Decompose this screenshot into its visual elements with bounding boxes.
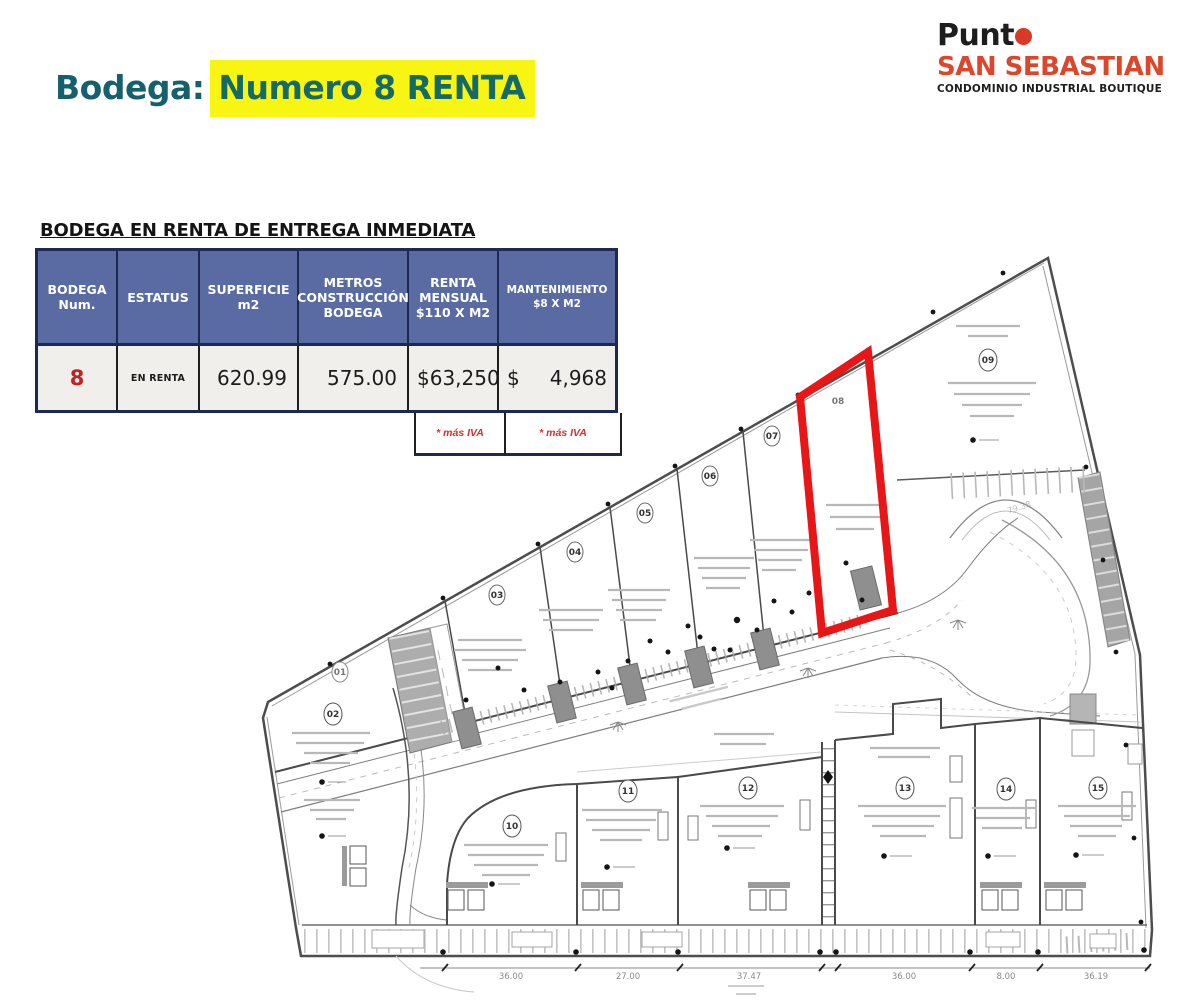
- svg-text:15: 15: [1092, 784, 1105, 794]
- unit-label-06: 06: [702, 466, 718, 486]
- listing-subtitle: BODEGA EN RENTA DE ENTREGA INMEDIATA: [40, 220, 475, 241]
- unit-label-03: 03: [489, 585, 505, 605]
- dimension-label: 8.00: [997, 972, 1016, 982]
- col-header-estatus: ESTATUS: [118, 251, 200, 346]
- unit-label-15: 15: [1089, 777, 1107, 799]
- dimension-label: 36.00: [499, 972, 523, 982]
- unit-label-12: 12: [739, 777, 757, 799]
- unit-label-13: 13: [896, 777, 914, 799]
- unit-label-10: 10: [503, 815, 521, 837]
- flyer-page: Bodega:Numero 8 RENTA Punt SAN SEBASTIAN…: [0, 0, 1200, 1000]
- title-prefix: Bodega:: [55, 68, 204, 107]
- svg-text:04: 04: [569, 548, 582, 558]
- unit-label-07: 07: [764, 426, 780, 446]
- svg-text:07: 07: [766, 432, 779, 442]
- site-plan: 01 03 04 05 06 07 08 09 02 10 11 12 13 1…: [230, 245, 1190, 1000]
- unit-label-11: 11: [619, 780, 637, 802]
- svg-text:14: 14: [1000, 785, 1013, 795]
- svg-text:06: 06: [704, 472, 717, 482]
- dimension-label: 36.00: [892, 972, 916, 982]
- svg-text:11: 11: [622, 787, 635, 797]
- unit-label-02: 02: [324, 703, 342, 725]
- unit-label-14: 14: [997, 778, 1015, 800]
- brand-logo: Punt SAN SEBASTIAN CONDOMINIO INDUSTRIAL…: [937, 20, 1177, 95]
- cell-bodega-num: 8: [38, 346, 118, 410]
- svg-text:10: 10: [506, 822, 519, 832]
- dimension-label: 27.00: [616, 972, 640, 982]
- dimension-line: 36.00 27.00 37.47 36.00 8.00 36.19: [420, 964, 1151, 994]
- svg-text:05: 05: [639, 509, 652, 519]
- page-title: Bodega:Numero 8 RENTA: [55, 68, 535, 107]
- svg-text:08: 08: [832, 397, 845, 407]
- brand-line2: SAN SEBASTIAN: [937, 54, 1177, 81]
- dimension-label: 37.47: [737, 972, 761, 982]
- brand-line3: CONDOMINIO INDUSTRIAL BOUTIQUE: [937, 84, 1177, 95]
- svg-text:03: 03: [491, 591, 504, 601]
- svg-text:02: 02: [327, 710, 340, 720]
- svg-text:01: 01: [334, 668, 347, 678]
- unit-label-08: 08: [832, 397, 845, 407]
- unit-label-09: 09: [979, 349, 997, 371]
- unit-label-01: 01: [332, 662, 348, 682]
- unit-label-04: 04: [567, 542, 583, 562]
- col-header-bodega: BODEGANum.: [38, 251, 118, 346]
- title-highlight: Numero 8 RENTA: [210, 60, 535, 117]
- cell-estatus: EN RENTA: [118, 346, 200, 410]
- svg-text:12: 12: [742, 784, 755, 794]
- brand-name: Punt: [937, 20, 1177, 52]
- brand-dot-icon: [1015, 28, 1032, 45]
- dimension-label: 36.19: [1084, 972, 1108, 982]
- unit-label-05: 05: [637, 503, 653, 523]
- plan-boundary: [263, 258, 1152, 992]
- svg-text:09: 09: [982, 356, 995, 366]
- svg-text:13: 13: [899, 784, 912, 794]
